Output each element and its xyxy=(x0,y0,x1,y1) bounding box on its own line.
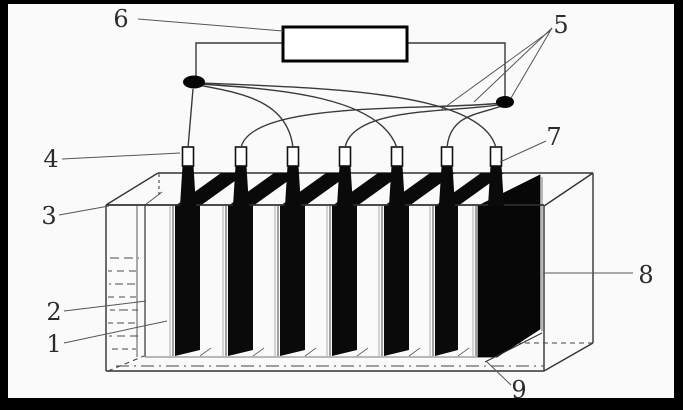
electrode-tab xyxy=(491,147,502,166)
end-electrode-plate xyxy=(473,175,542,362)
electrode-tab xyxy=(183,147,194,166)
plate-front-face xyxy=(175,205,200,356)
diagram-canvas: 1 2 3 4 5 6 7 8 9 xyxy=(0,0,683,410)
electrode-tab xyxy=(288,147,299,166)
callout-6: 6 xyxy=(113,5,128,33)
callout-8: 8 xyxy=(638,261,653,289)
electrode-tab xyxy=(392,147,403,166)
callout-3: 3 xyxy=(41,202,56,230)
callout-5: 5 xyxy=(553,11,568,39)
power-supply-box xyxy=(283,27,407,61)
electrode-tab xyxy=(236,147,247,166)
plate-front-face xyxy=(332,205,357,356)
terminal-node-left xyxy=(183,76,205,89)
electrode-tab xyxy=(442,147,453,166)
plate-front-face xyxy=(228,205,253,356)
callout-4: 4 xyxy=(43,145,58,173)
plate-front-face xyxy=(280,205,305,356)
electrode-tab xyxy=(340,147,351,166)
end-plate-face xyxy=(478,175,540,357)
figure-frame: 1 2 3 4 5 6 7 8 9 xyxy=(0,0,683,410)
callout-9: 9 xyxy=(511,376,526,404)
plate-front-face xyxy=(435,205,458,356)
callout-1: 1 xyxy=(46,330,61,358)
callout-2: 2 xyxy=(46,298,61,326)
plate-front-face xyxy=(384,205,409,356)
callout-7: 7 xyxy=(546,123,561,151)
